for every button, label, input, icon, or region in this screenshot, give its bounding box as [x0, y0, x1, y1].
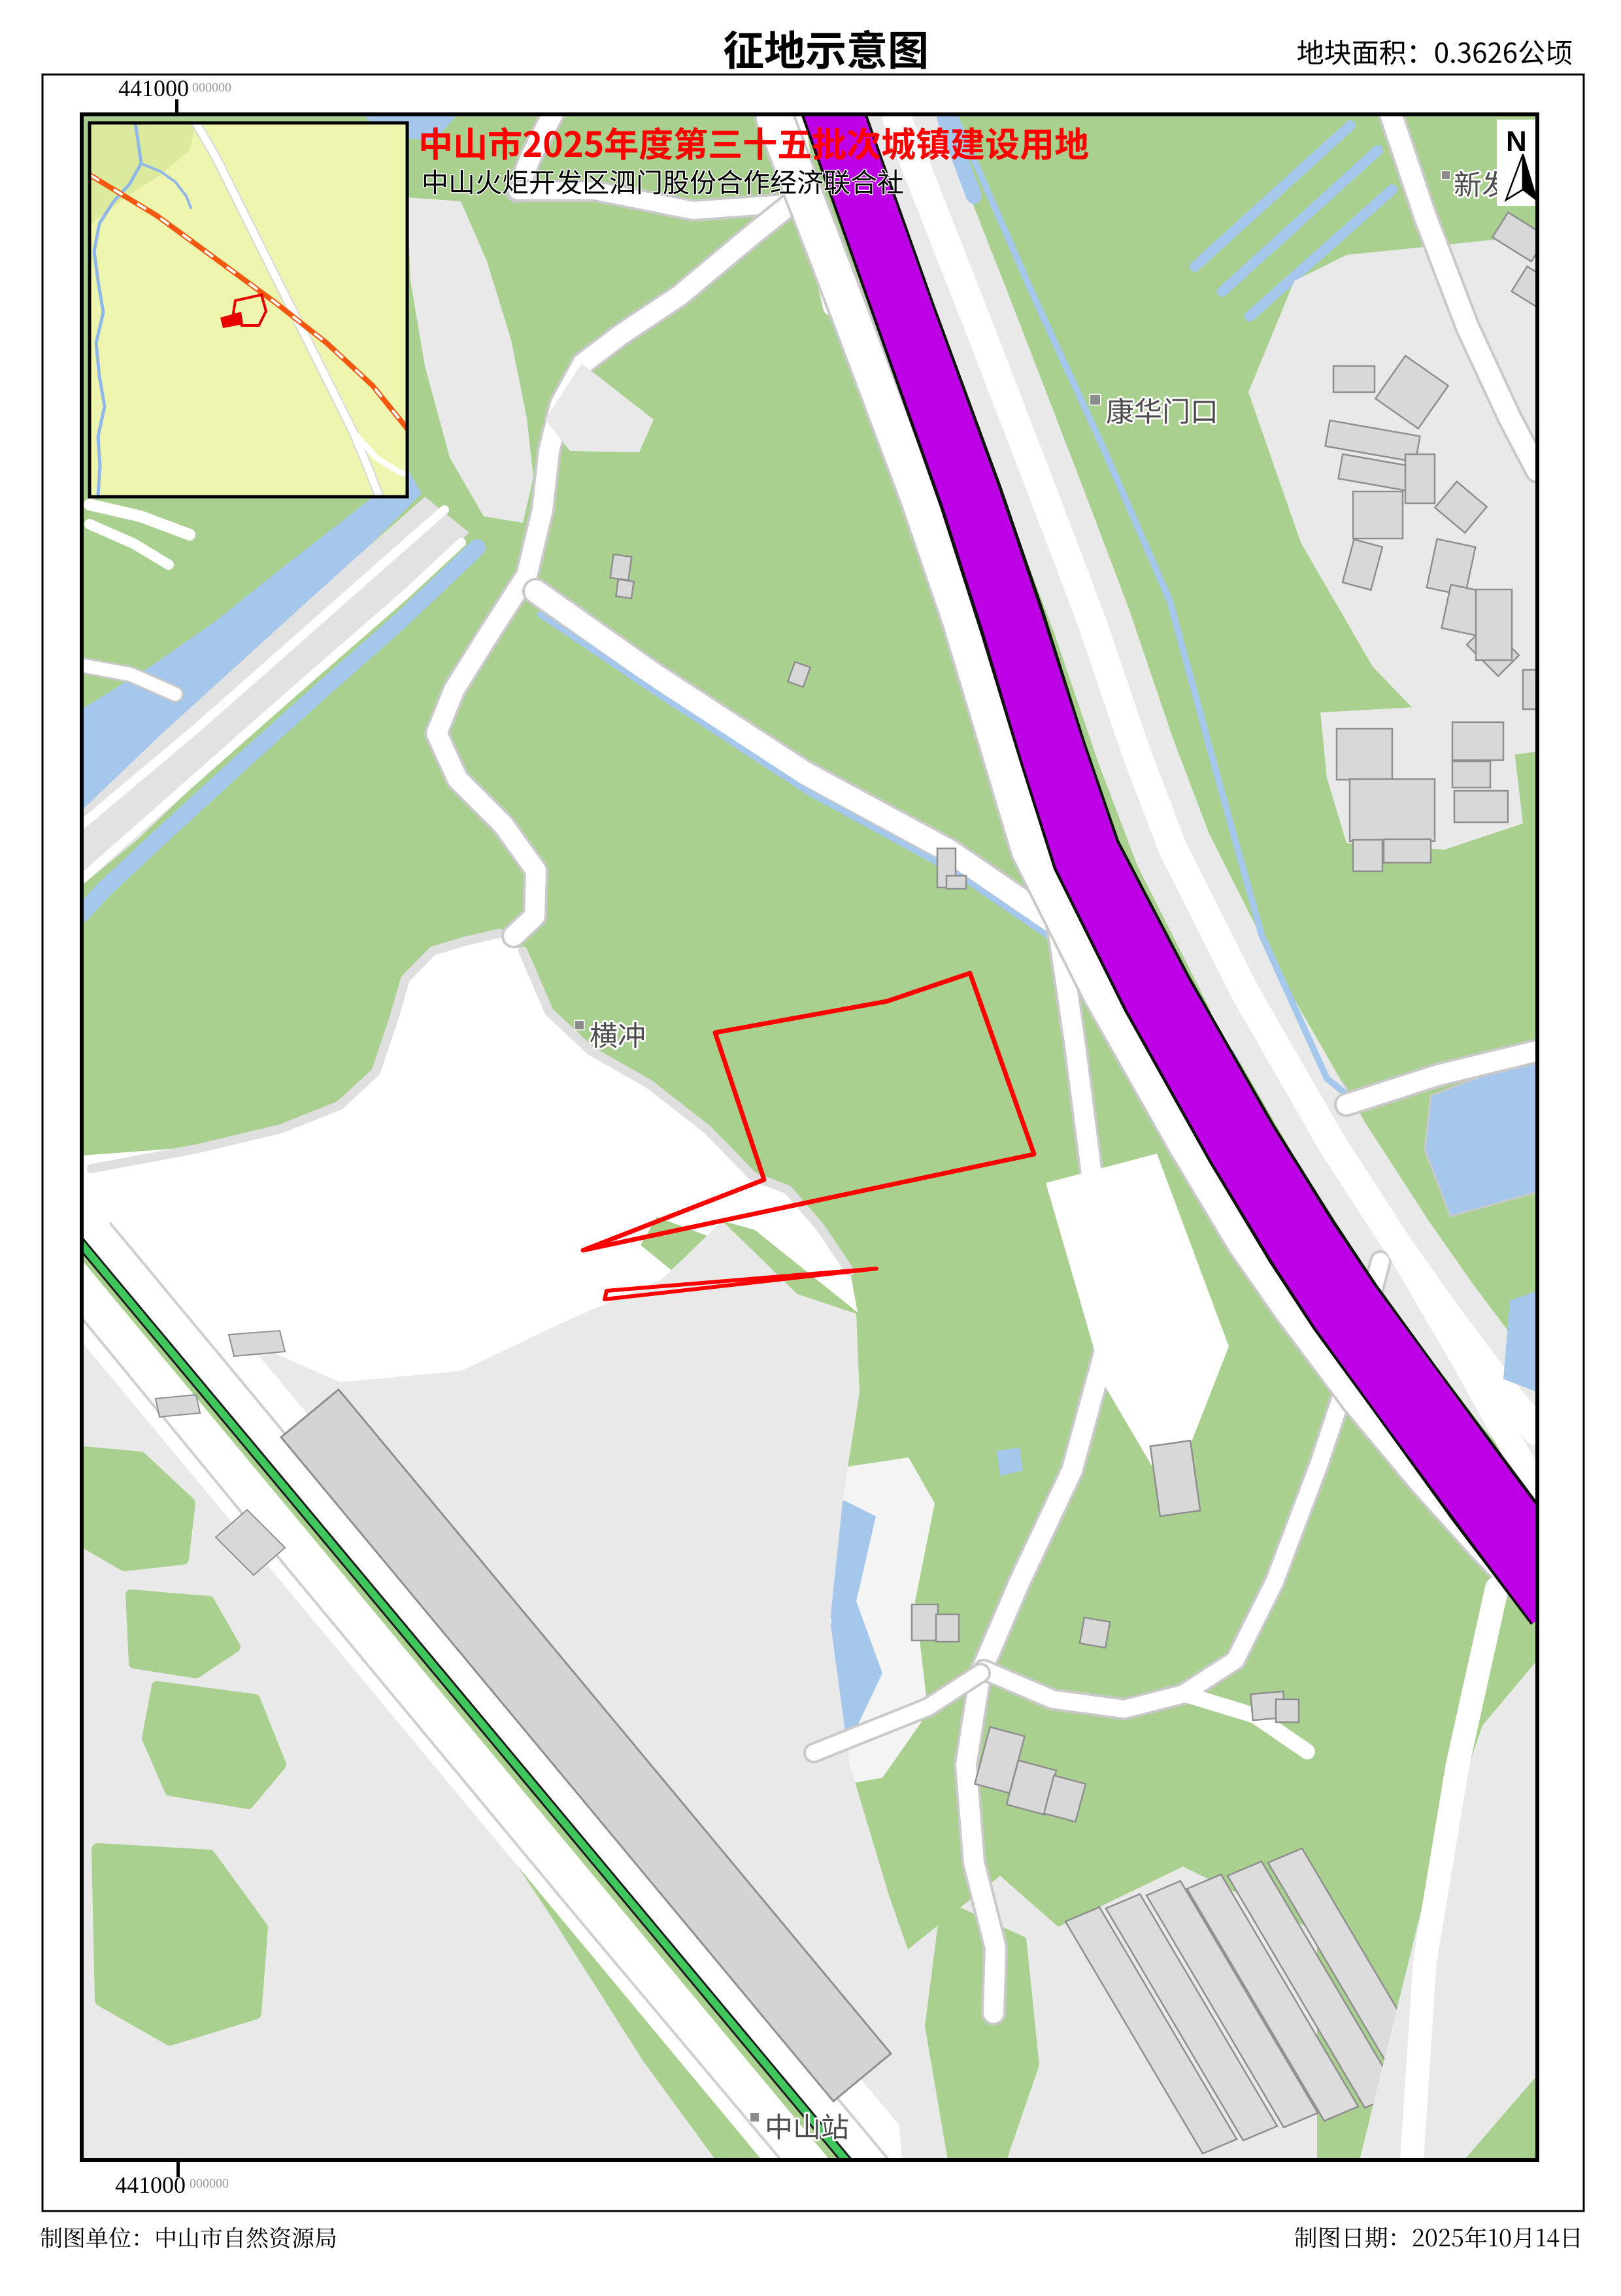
svg-text:441000: 441000 [115, 2172, 186, 2198]
svg-text:000000: 000000 [190, 2176, 229, 2191]
svg-text:000000: 000000 [192, 80, 231, 95]
svg-text:441000: 441000 [118, 75, 189, 101]
svg-text:N: N [1506, 125, 1527, 158]
